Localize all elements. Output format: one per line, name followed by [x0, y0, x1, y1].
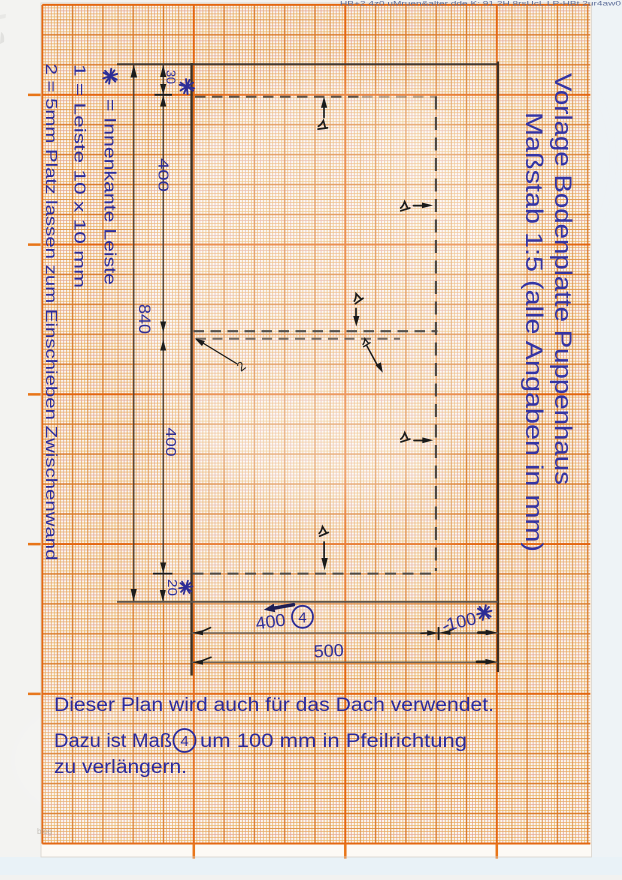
- svg-text:500: 500: [313, 640, 344, 662]
- svg-text:30: 30: [164, 70, 178, 84]
- svg-text:Dazu ist Maß: Dazu ist Maß: [54, 731, 172, 752]
- svg-text:1 = Leiste 10 x 10 mm: 1 = Leiste 10 x 10 mm: [71, 64, 88, 288]
- svg-text:Maßstab 1:5 (alle Angaben in m: Maßstab 1:5 (alle Angaben in mm): [520, 112, 547, 552]
- svg-text:400: 400: [162, 428, 179, 457]
- svg-text:400: 400: [155, 158, 172, 192]
- svg-text:2 = 5mm Platz lassen zum Einsc: 2 = 5mm Platz lassen zum Einschieben Zwi…: [42, 64, 59, 561]
- svg-text:HB+2 4z0 uMruen&alter dde K: 9: HB+2 4z0 uMruen&alter dde K: 91 2H 8rsUc…: [340, 1, 622, 8]
- svg-text:blog: blog: [37, 827, 52, 836]
- svg-text:4: 4: [298, 609, 306, 626]
- svg-text:Dieser Plan wird auch für das: Dieser Plan wird auch für das Dach verwe…: [54, 695, 494, 716]
- svg-text:20: 20: [165, 579, 180, 596]
- svg-text:400: 400: [254, 609, 287, 633]
- svg-text:Vorlage Bodenplatte Puppenhaus: Vorlage Bodenplatte Puppenhaus: [549, 73, 576, 485]
- svg-text:4: 4: [180, 733, 188, 750]
- svg-text:= Innenkante Leiste: = Innenkante Leiste: [101, 99, 120, 285]
- svg-text:um 100 mm in Pfeilrichtung: um 100 mm in Pfeilrichtung: [200, 731, 467, 752]
- svg-text:840: 840: [135, 304, 154, 334]
- svg-text:zu verlängern.: zu verlängern.: [54, 757, 187, 778]
